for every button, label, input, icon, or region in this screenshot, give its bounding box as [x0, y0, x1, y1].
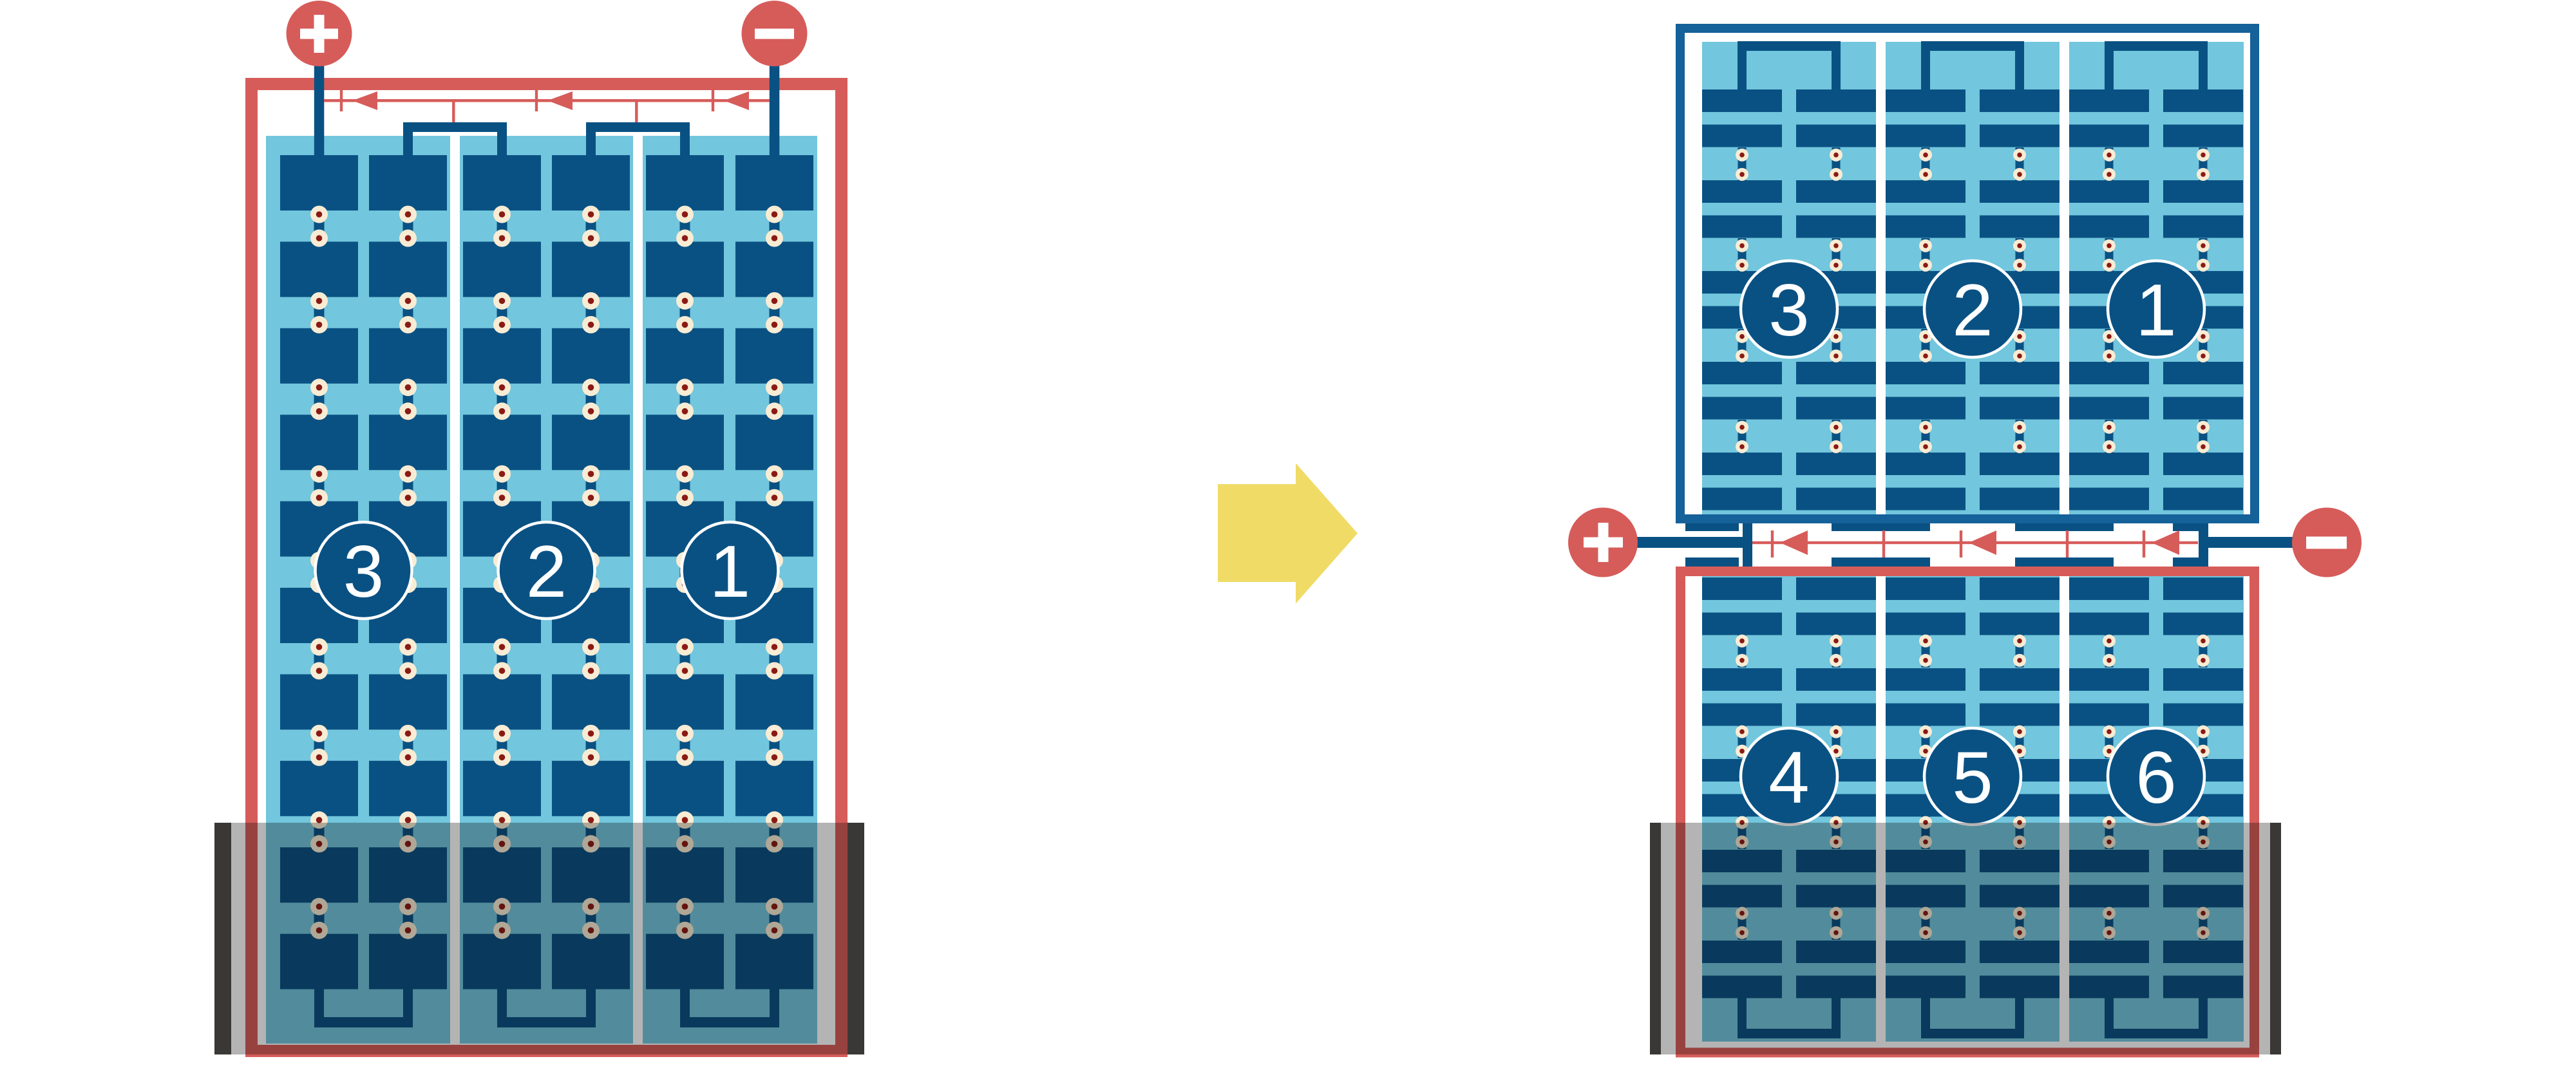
svg-text:1: 1: [2136, 270, 2176, 351]
svg-text:2: 2: [1952, 270, 1993, 351]
svg-text:5: 5: [1952, 737, 1993, 819]
svg-text:6: 6: [2136, 737, 2176, 819]
svg-text:3: 3: [1768, 270, 1809, 351]
svg-text:1: 1: [710, 531, 750, 613]
svg-text:2: 2: [526, 531, 567, 613]
svg-text:3: 3: [343, 531, 384, 613]
svg-text:4: 4: [1768, 737, 1809, 819]
